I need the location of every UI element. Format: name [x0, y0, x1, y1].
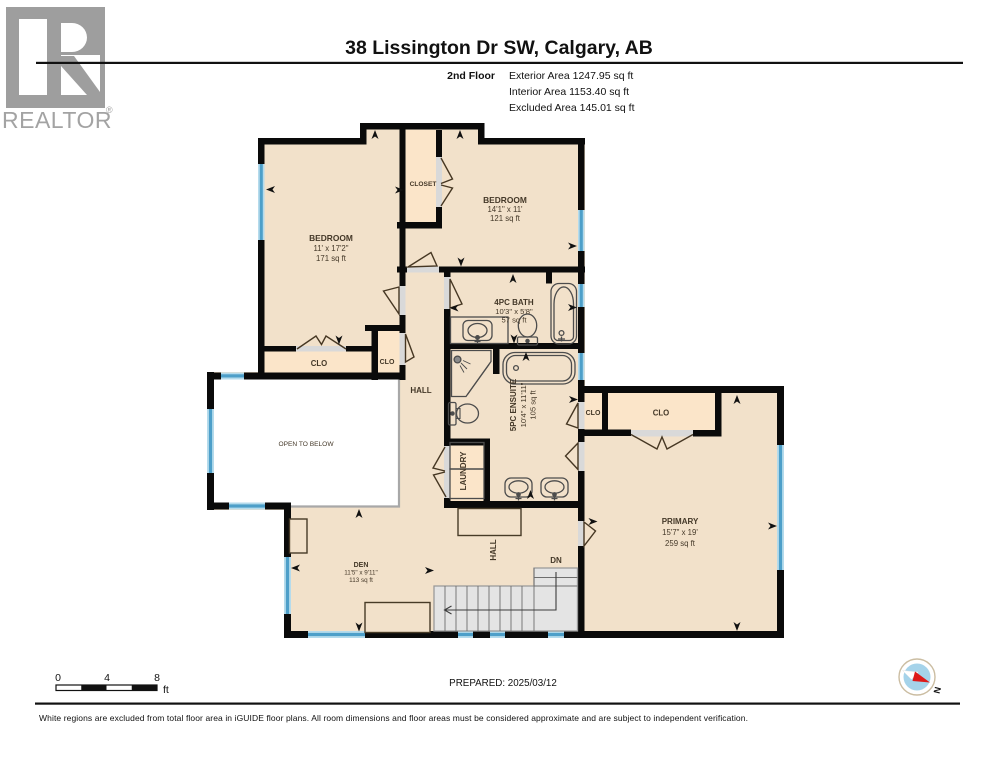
svg-text:0: 0 — [55, 672, 61, 684]
svg-text:HALL: HALL — [410, 386, 431, 395]
svg-text:REALTOR: REALTOR — [2, 107, 112, 133]
svg-text:259 sq ft: 259 sq ft — [665, 539, 696, 548]
svg-text:CLOSET: CLOSET — [410, 181, 437, 188]
svg-text:ft: ft — [163, 684, 169, 696]
svg-text:PREPARED: 2025/03/12: PREPARED: 2025/03/12 — [449, 678, 557, 689]
svg-text:PRIMARY: PRIMARY — [662, 517, 699, 526]
svg-text:15'7" x 19': 15'7" x 19' — [662, 528, 698, 537]
svg-text:5PC ENSUITE: 5PC ENSUITE — [509, 378, 518, 431]
svg-text:11' x 17'2": 11' x 17'2" — [313, 244, 348, 253]
svg-text:DN: DN — [550, 556, 562, 565]
svg-text:105 sq ft: 105 sq ft — [529, 390, 538, 420]
svg-text:171 sq ft: 171 sq ft — [316, 254, 347, 263]
svg-text:BEDROOM: BEDROOM — [483, 195, 527, 205]
svg-text:38 Lissington Dr SW, Calgary,: 38 Lissington Dr SW, Calgary, AB — [345, 37, 653, 59]
svg-text:DEN: DEN — [354, 562, 369, 569]
svg-text:CLO: CLO — [653, 409, 669, 418]
svg-text:Excluded Area 145.01 sq ft: Excluded Area 145.01 sq ft — [509, 102, 635, 114]
svg-text:CLO: CLO — [311, 359, 327, 368]
svg-text:4: 4 — [104, 672, 110, 684]
svg-text:OPEN TO BELOW: OPEN TO BELOW — [278, 441, 334, 448]
svg-text:BEDROOM: BEDROOM — [309, 233, 353, 243]
svg-text:CLO: CLO — [380, 359, 395, 366]
svg-text:4PC BATH: 4PC BATH — [494, 298, 534, 307]
svg-text:Exterior Area 1247.95 sq ft: Exterior Area 1247.95 sq ft — [509, 70, 633, 82]
svg-text:LAUNDRY: LAUNDRY — [459, 451, 468, 490]
svg-text:57 sq ft: 57 sq ft — [502, 316, 528, 325]
svg-text:113 sq ft: 113 sq ft — [349, 577, 373, 584]
svg-text:Interior Area 1153.40 sq ft: Interior Area 1153.40 sq ft — [509, 86, 629, 98]
svg-text:8: 8 — [154, 672, 160, 684]
svg-text:14'1" x 11': 14'1" x 11' — [487, 205, 523, 214]
svg-text:10'4" x 11'11": 10'4" x 11'11" — [519, 382, 528, 427]
svg-text:121 sq ft: 121 sq ft — [490, 214, 521, 223]
svg-text:2nd Floor: 2nd Floor — [447, 70, 495, 82]
svg-text:HALL: HALL — [489, 539, 498, 560]
svg-text:®: ® — [106, 105, 113, 115]
svg-text:White regions are excluded fro: White regions are excluded from total fl… — [39, 713, 748, 723]
svg-text:11'5" x 9'11": 11'5" x 9'11" — [344, 570, 378, 577]
svg-text:CLO: CLO — [586, 410, 601, 417]
